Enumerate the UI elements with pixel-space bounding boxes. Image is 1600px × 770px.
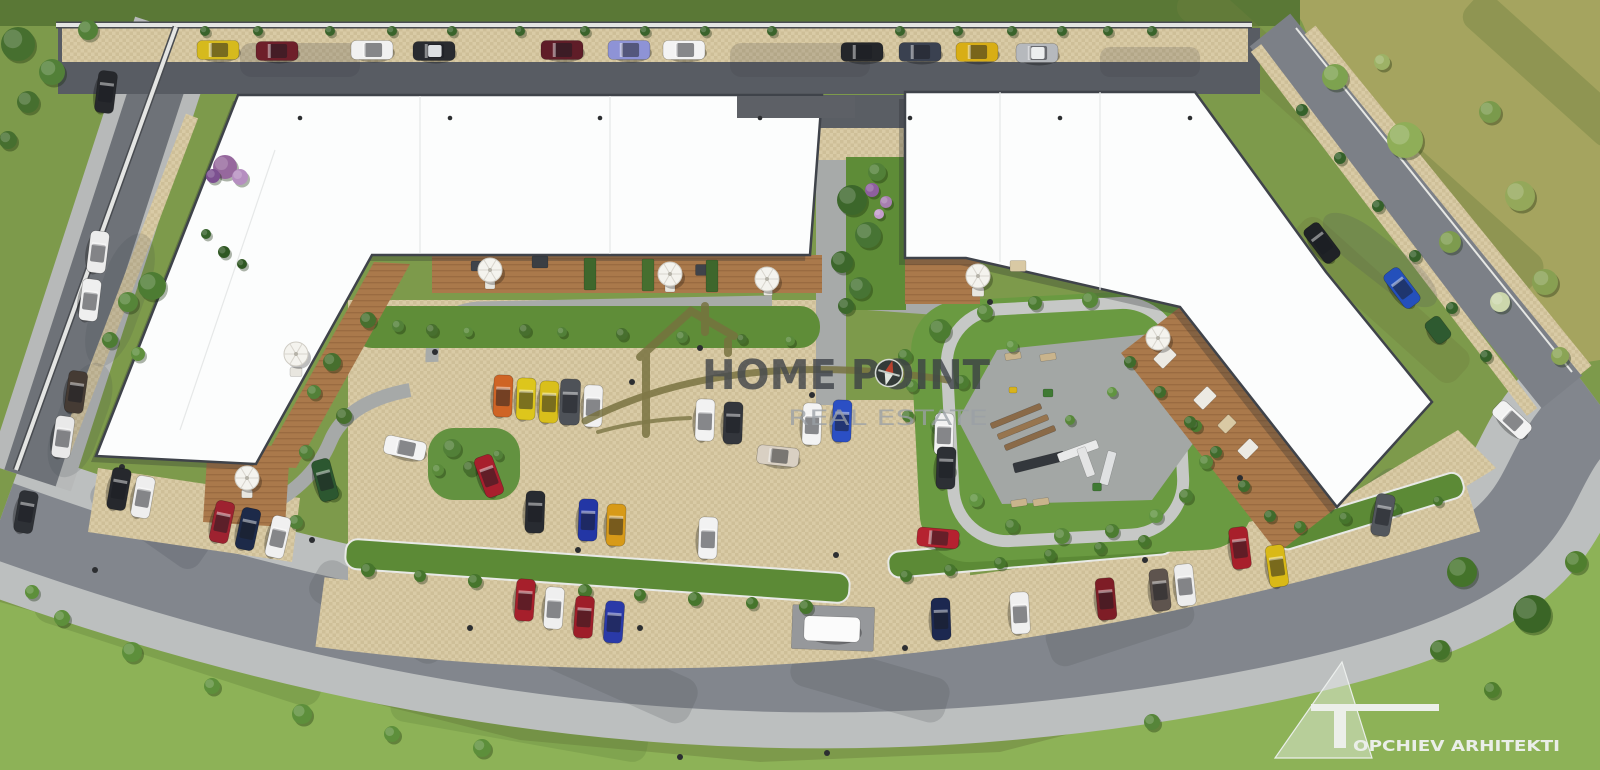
manhole-dot — [598, 116, 603, 121]
manhole-dot — [833, 552, 839, 558]
terrace-furniture — [532, 256, 548, 268]
manhole-dot — [92, 567, 98, 573]
manhole-dot — [575, 547, 581, 553]
manhole-dot — [298, 116, 303, 121]
car — [608, 41, 652, 63]
manhole-dot — [902, 645, 908, 651]
manhole-dot — [677, 754, 683, 760]
car — [351, 41, 395, 63]
manhole-dot — [432, 349, 438, 355]
t-bar-icon — [1311, 704, 1439, 711]
manhole-dot — [309, 537, 315, 543]
manhole-dot — [824, 750, 830, 756]
aerial-site-plan: HOME POINT REAL ESTATE OPCHIEV ARHITEKTI — [0, 0, 1600, 770]
manhole-dot — [987, 299, 993, 305]
manhole-dot — [908, 116, 913, 121]
terrace-furniture — [642, 259, 654, 291]
between-buildings-paving — [818, 128, 906, 160]
terrace-furniture — [706, 260, 718, 292]
car — [899, 43, 943, 65]
manhole-dot — [1237, 475, 1243, 481]
left-building-entrance-recess — [737, 96, 855, 118]
terrace-furniture — [1093, 483, 1102, 491]
green-island-north — [352, 306, 820, 348]
car — [803, 616, 862, 646]
car — [256, 42, 300, 64]
terrace-furniture — [1043, 389, 1053, 397]
site-plan-render: HOME POINT REAL ESTATE OPCHIEV ARHITEKTI — [0, 0, 1600, 770]
shadow-streak — [1100, 47, 1200, 77]
manhole-dot — [448, 116, 453, 121]
manhole-dot — [1142, 557, 1148, 563]
manhole-dot — [629, 379, 635, 385]
terrace-furniture — [1009, 387, 1017, 393]
car — [841, 43, 885, 65]
watermark-brand-text: HOME POINT — [702, 351, 990, 399]
terrace-furniture — [584, 258, 596, 290]
architect-logo-text: OPCHIEV ARHITEKTI — [1353, 737, 1560, 755]
manhole-dot — [467, 625, 473, 631]
t-stem-icon — [1334, 704, 1346, 748]
manhole-dot — [1188, 116, 1193, 121]
car — [197, 41, 241, 63]
car — [956, 43, 1000, 65]
terrace-furniture — [1010, 261, 1026, 272]
car — [413, 42, 457, 64]
car — [663, 41, 707, 63]
manhole-dot — [1058, 116, 1063, 121]
manhole-dot — [637, 625, 643, 631]
car — [1016, 44, 1060, 66]
manhole-dot — [758, 116, 763, 121]
top-road-parking-strip — [62, 28, 1248, 62]
car — [541, 41, 585, 63]
watermark-subtitle-text: REAL ESTATE — [788, 406, 988, 430]
